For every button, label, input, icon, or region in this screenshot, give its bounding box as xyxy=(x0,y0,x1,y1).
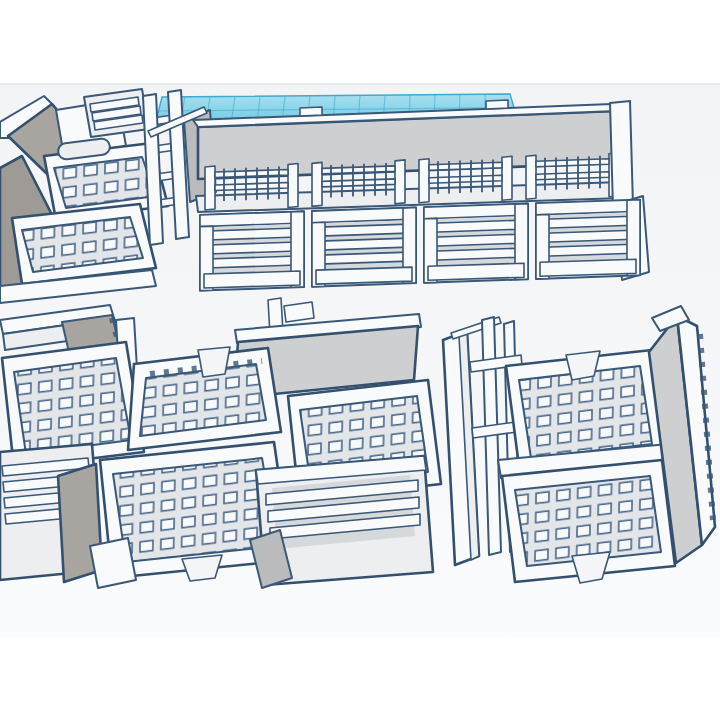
edge-notch xyxy=(566,351,600,380)
stair-piece[interactable] xyxy=(84,89,149,137)
doorway-gap xyxy=(198,347,230,377)
edge-notch xyxy=(182,555,222,581)
viewport-canvas[interactable] xyxy=(0,0,720,720)
screenshot-root xyxy=(0,0,720,720)
